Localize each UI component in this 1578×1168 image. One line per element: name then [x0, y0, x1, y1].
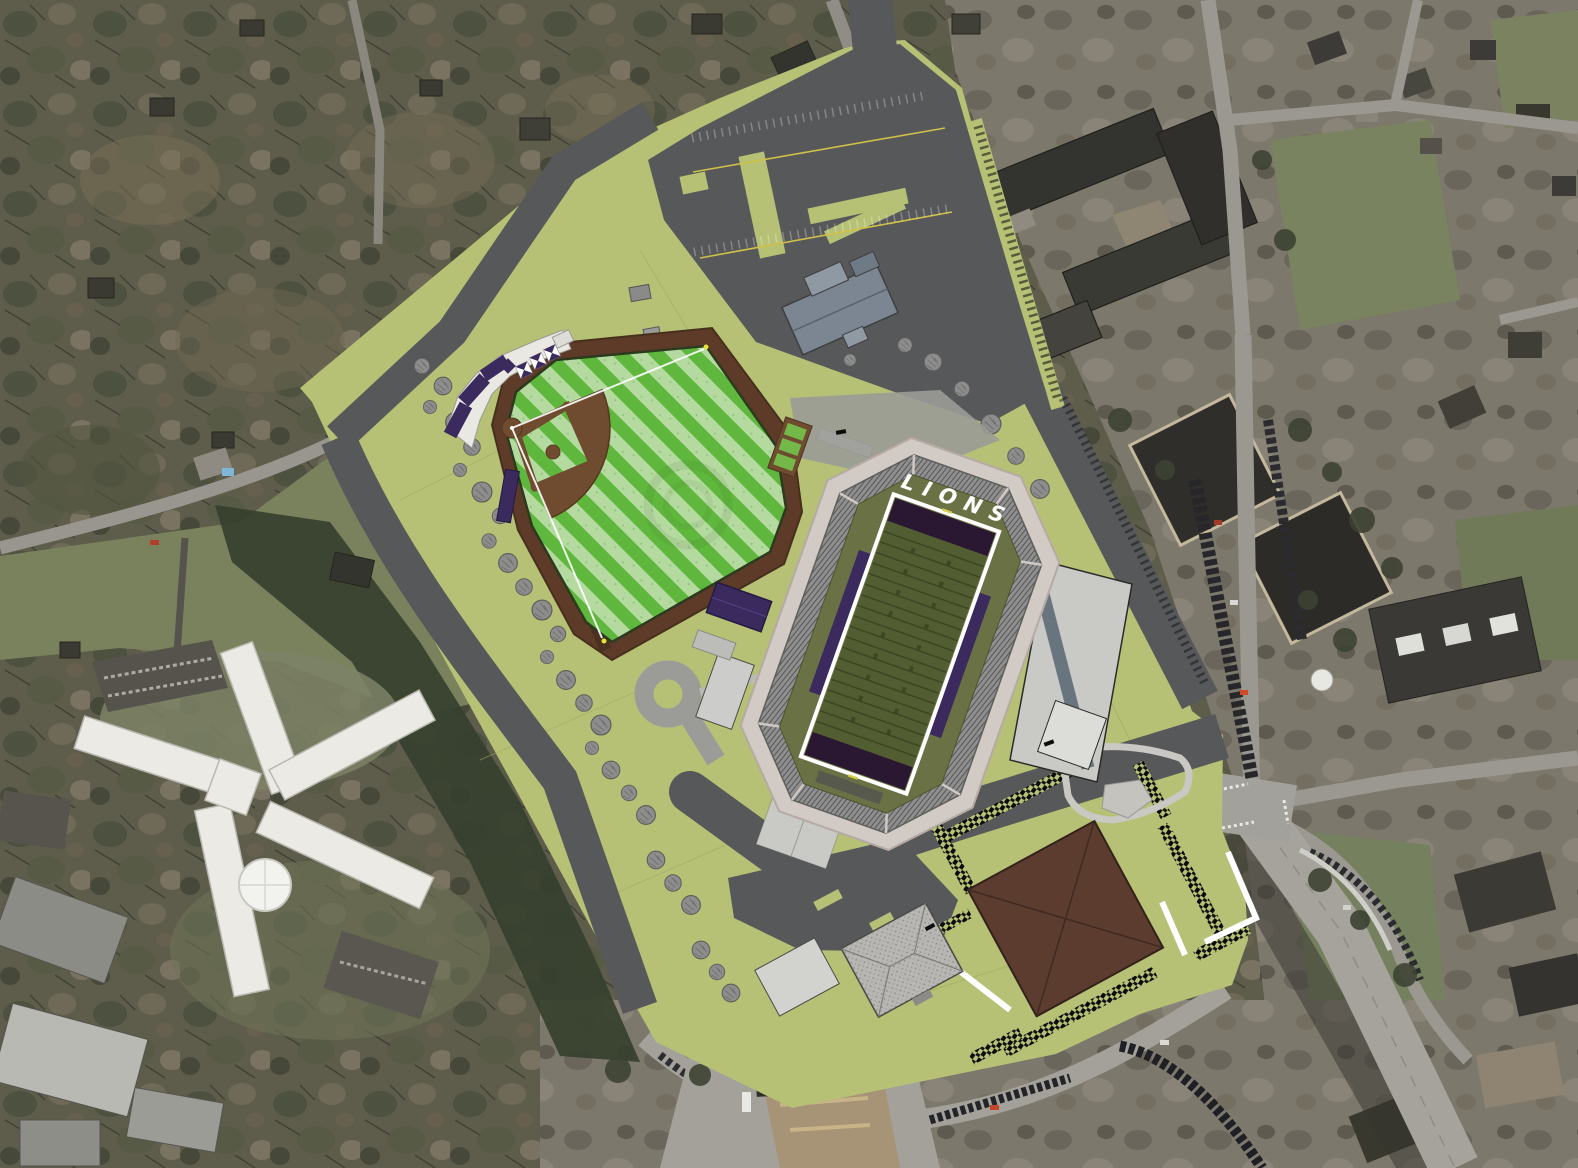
foul-pole [704, 345, 709, 350]
base-cutout [588, 459, 597, 468]
forest-clearing [345, 112, 495, 208]
parking-entrance [848, 0, 897, 52]
scene-canvas: LIONS [0, 0, 1578, 1168]
truck [742, 1092, 751, 1112]
satellite-dish [1311, 669, 1333, 691]
aerial-site-plan-screenshot: LIONS [0, 0, 1578, 1168]
hospital-parking [0, 791, 71, 850]
pitchers-mound [546, 445, 560, 459]
forest-clearing [80, 135, 220, 225]
swimming-pool [222, 468, 234, 476]
forest-thicket [20, 425, 160, 515]
foul-pole [602, 639, 607, 644]
gray-shed [629, 284, 651, 301]
